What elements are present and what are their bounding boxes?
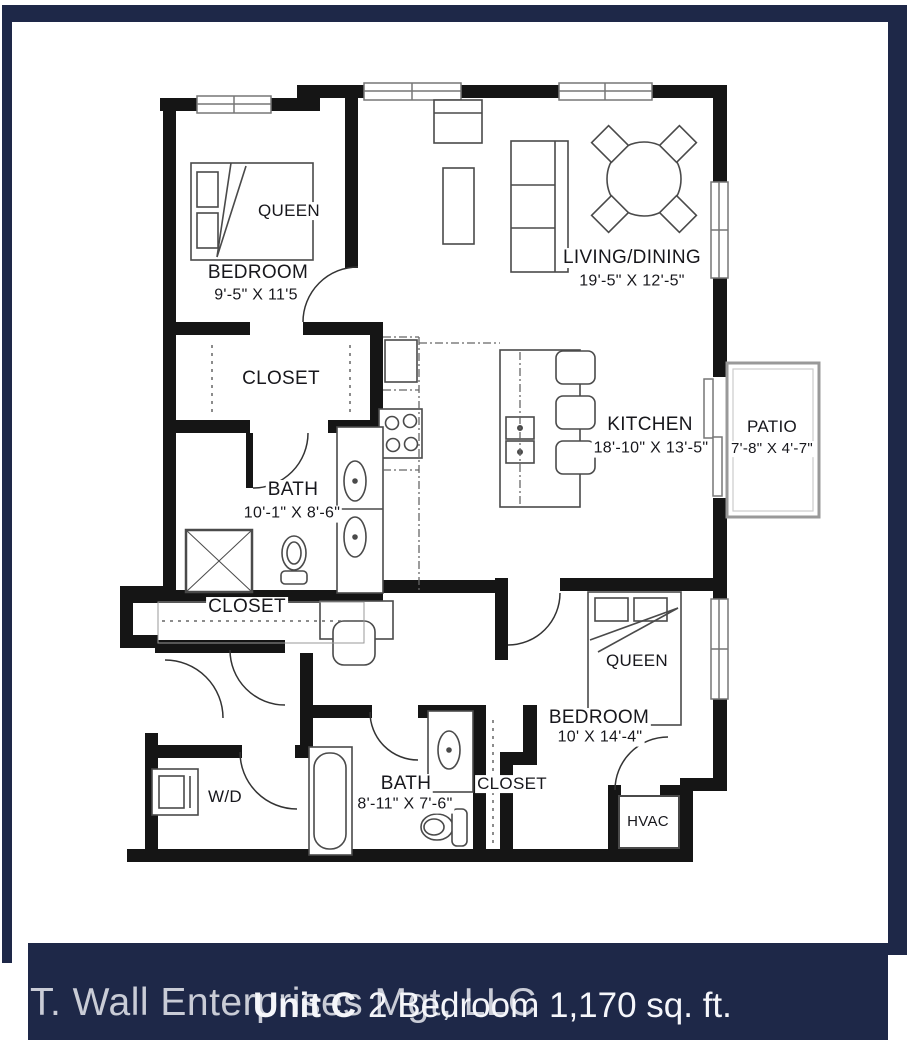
bedroom2-window-icon: [711, 599, 728, 699]
bath1-label: BATH: [266, 480, 320, 500]
frame-border-right: [888, 5, 907, 955]
living-dining-dims: 19'-5" X 12'-5": [577, 274, 687, 291]
closet2-label: CLOSET: [206, 597, 288, 617]
vanity-icon: [428, 711, 473, 792]
bath2-label: BATH: [379, 774, 433, 794]
kitchen-label: KITCHEN: [605, 415, 695, 435]
closet3-label: CLOSET: [475, 775, 549, 793]
bed2-queen-label: QUEEN: [604, 652, 670, 670]
sofa-icon: [511, 141, 568, 272]
bath2-dims: 8'-11" X 7'-6": [355, 797, 454, 814]
bedroom2-dims: 10' X 14'-4": [556, 730, 645, 747]
coffee-table-icon: [443, 168, 474, 244]
bedroom1-window-icon: [197, 96, 271, 113]
bedroom1-dims: 9'-5" X 11'5: [212, 288, 300, 305]
double-vanity-icon: [337, 427, 383, 593]
laundry-door-icon: [240, 752, 297, 809]
closet2-door-icon: [230, 650, 285, 705]
bedroom1-label: BEDROOM: [206, 263, 310, 283]
shower-icon: [186, 530, 252, 592]
frame-border-top: [2, 5, 907, 22]
toilet-icon: [421, 809, 467, 846]
hvac-label: HVAC: [625, 814, 671, 830]
bedroom2-door-icon: [508, 593, 560, 645]
unit-label: Unit C: [253, 986, 356, 1025]
bedroom2-label: BEDROOM: [547, 708, 651, 728]
bedroom1-door-icon: [303, 267, 358, 322]
entry-door-icon: [165, 660, 223, 718]
unit-caption: Unit C2 Bedroom 1,170 sq. ft.: [253, 986, 732, 1026]
bath1-dims: 10'-1" X 8'-6": [242, 506, 342, 523]
armchair-icon: [434, 100, 482, 143]
frame-border-left: [2, 5, 12, 963]
living-window-icon: [364, 83, 461, 100]
patio-label: PATIO: [745, 418, 799, 436]
closet1-label: CLOSET: [240, 369, 322, 389]
washer-dryer-icon: [152, 769, 198, 815]
living-side-window-icon: [711, 182, 728, 278]
dining-window-icon: [559, 83, 652, 100]
refrigerator-icon: [385, 340, 417, 382]
floor-plan-drawing: [0, 0, 914, 1046]
kitchen-dims: 18'-10" X 13'-5": [592, 441, 711, 458]
stove-icon: [379, 409, 422, 458]
bathtub-icon: [309, 747, 352, 855]
bar-stool-icon: [556, 351, 595, 384]
living-dining-label: LIVING/DINING: [561, 248, 703, 268]
bar-stool-icon: [556, 396, 595, 429]
patio-dims: 7'-8" X 4'-7": [729, 441, 815, 457]
bed1-queen-label: QUEEN: [256, 202, 322, 220]
dining-table-icon: [592, 126, 697, 233]
toilet-icon: [281, 536, 307, 584]
unit-description: 2 Bedroom 1,170 sq. ft.: [368, 986, 732, 1025]
bar-stool-icon: [556, 441, 595, 474]
bath2-door-icon: [370, 712, 418, 760]
washer-dryer-label: W/D: [206, 788, 244, 806]
floor-plan-page: QUEEN BEDROOM 9'-5" X 11'5 LIVING/DINING…: [0, 0, 914, 1046]
patio-door-icon: [704, 377, 729, 498]
